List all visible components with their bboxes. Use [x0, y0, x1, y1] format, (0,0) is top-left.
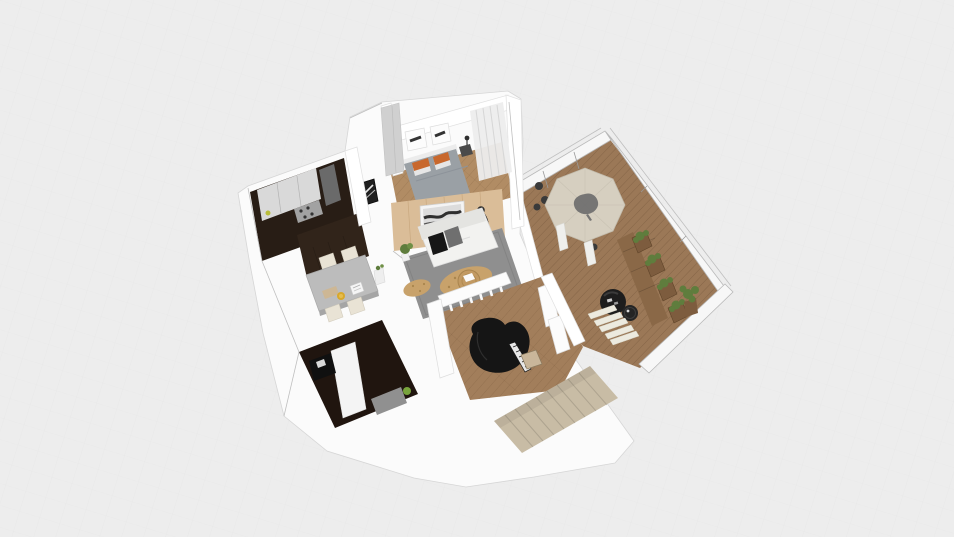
- floorplan-viewport[interactable]: [0, 0, 954, 537]
- kitchen-small-item: [266, 211, 271, 216]
- table-lamp: [465, 136, 470, 141]
- floorplan-3d-view[interactable]: [0, 0, 954, 537]
- yellow-plate-center: [339, 294, 343, 298]
- office-plant[interactable]: [403, 387, 411, 395]
